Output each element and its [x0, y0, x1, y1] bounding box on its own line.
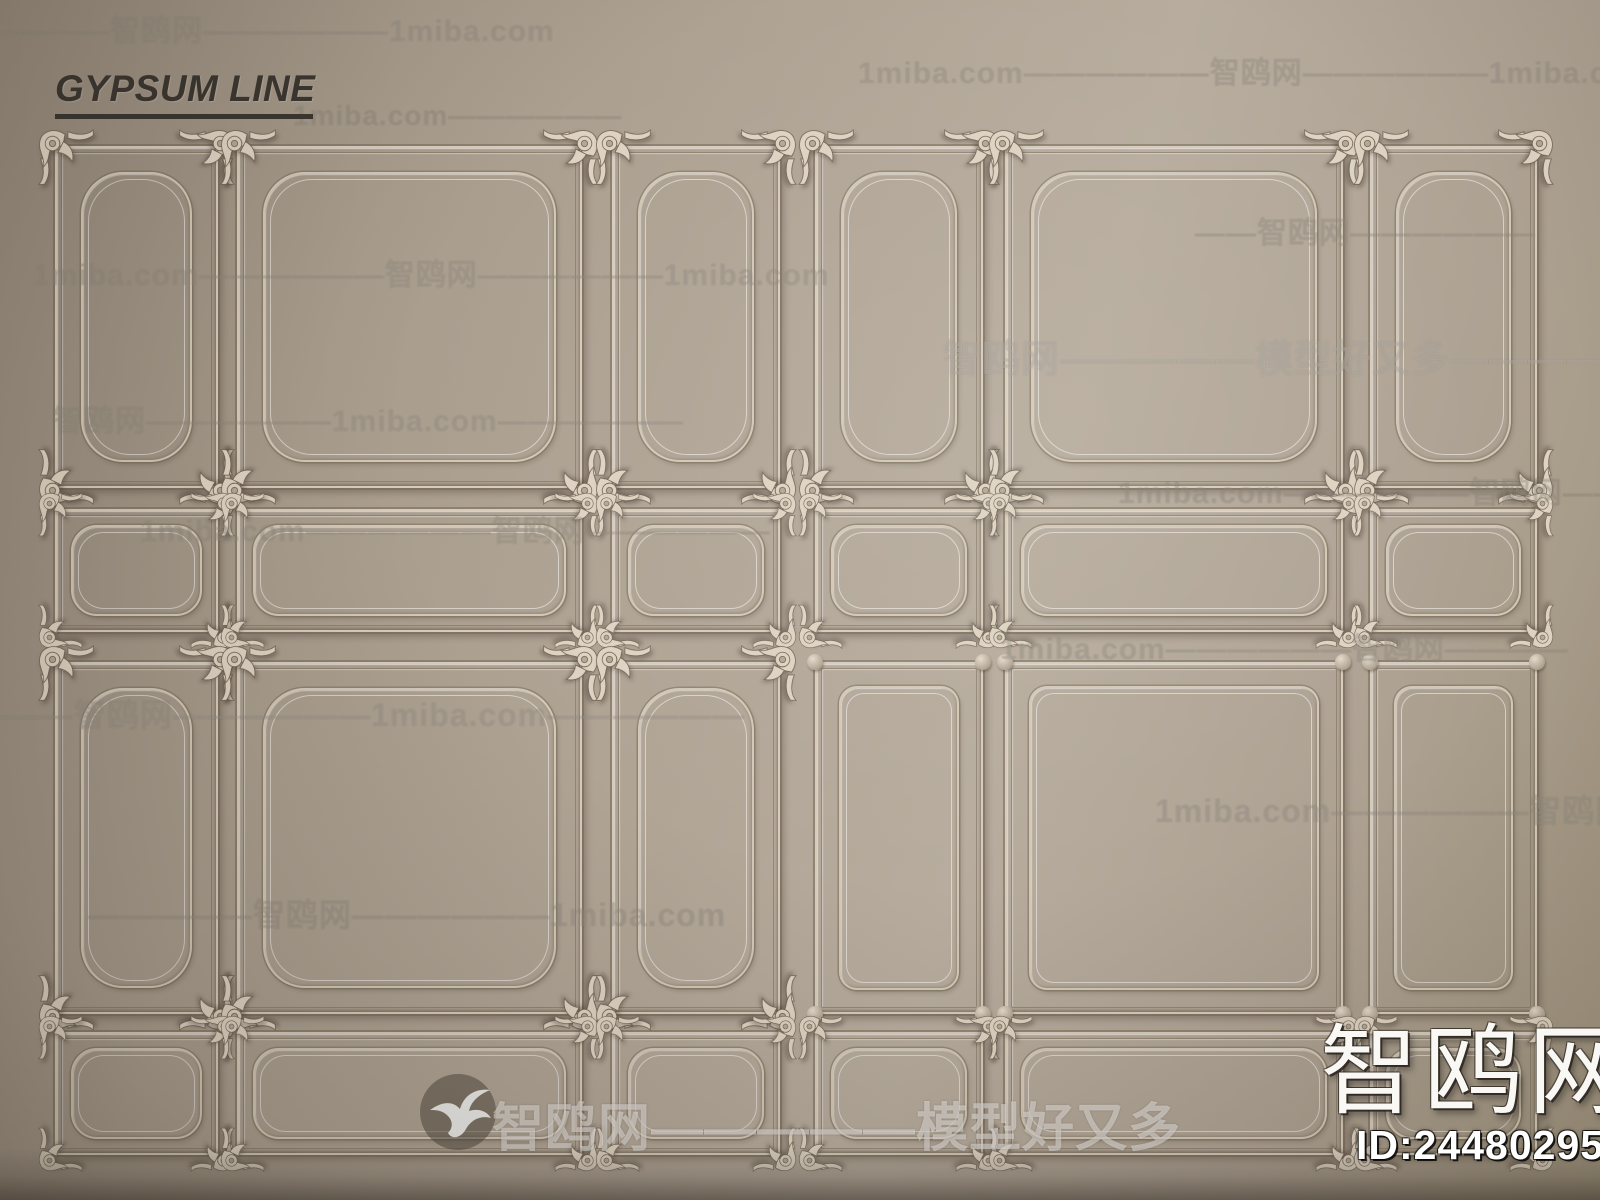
- molding-panel-r4c6: [1370, 1032, 1537, 1155]
- watermark-text: —————智鸥网——————1miba.com: [0, 6, 555, 50]
- corner-rosette-icon: [1529, 654, 1545, 670]
- corner-rosette-icon: [807, 654, 823, 670]
- corner-rosette-icon: [1362, 654, 1378, 670]
- corner-ornament-icon: [595, 1015, 641, 1061]
- corner-ornament-icon: [988, 129, 1046, 187]
- inner-molding: [1386, 525, 1521, 616]
- inner-molding: [628, 525, 764, 616]
- corner-ornament-icon: [1302, 129, 1360, 187]
- inner-molding: [839, 686, 959, 990]
- inner-molding: [841, 172, 957, 462]
- molding-panel-r2c4: [815, 509, 983, 632]
- corner-ornament-icon: [541, 129, 599, 187]
- corner-ornament-icon: [38, 645, 96, 703]
- inner-molding: [1394, 686, 1513, 990]
- molding-panel-r4c4: [815, 1032, 983, 1155]
- corner-ornament-icon: [38, 492, 84, 538]
- molding-panel-r1c4: [815, 146, 983, 488]
- inner-molding: [1029, 686, 1319, 990]
- corner-ornament-icon: [553, 492, 599, 538]
- inner-molding: [1396, 172, 1511, 462]
- corner-ornament-icon: [1353, 1126, 1399, 1172]
- corner-ornament-icon: [595, 645, 653, 703]
- inner-molding: [263, 688, 556, 988]
- molding-panel-r3c6: [1370, 662, 1537, 1014]
- corner-ornament-icon: [988, 1126, 1034, 1172]
- molding-panel-r3c4: [815, 662, 983, 1014]
- corner-ornament-icon: [798, 1015, 844, 1061]
- inner-molding: [253, 1048, 566, 1139]
- inner-molding: [1021, 525, 1327, 616]
- inner-molding: [71, 1048, 202, 1139]
- corner-ornament-icon: [751, 603, 797, 649]
- molding-panel-r2c1: [55, 509, 218, 632]
- molding-panel-r1c5: [1005, 146, 1343, 488]
- corner-ornament-icon: [1508, 1126, 1554, 1172]
- corner-ornament-icon: [739, 129, 797, 187]
- corner-ornament-icon: [751, 1126, 797, 1172]
- corner-ornament-icon: [798, 603, 844, 649]
- molding-panel-r3c2: [237, 662, 582, 1014]
- molding-panel-r4c5: [1005, 1032, 1343, 1155]
- corner-ornament-icon: [220, 1126, 266, 1172]
- corner-ornament-icon: [220, 603, 266, 649]
- inner-molding: [263, 172, 556, 462]
- corner-ornament-icon: [798, 129, 856, 187]
- corner-ornament-icon: [988, 603, 1034, 649]
- corner-ornament-icon: [38, 1015, 84, 1061]
- watermark-text: 1miba.com——————: [293, 100, 622, 132]
- corner-ornament-icon: [1508, 603, 1554, 649]
- inner-molding: [628, 1048, 764, 1139]
- molding-panel-r2c3: [612, 509, 780, 632]
- corner-rosette-icon: [1335, 654, 1351, 670]
- inner-molding: [71, 525, 202, 616]
- molding-panel-r2c5: [1005, 509, 1343, 632]
- corner-ornament-icon: [739, 645, 797, 703]
- corner-ornament-icon: [541, 645, 599, 703]
- corner-ornament-icon: [38, 129, 96, 187]
- corner-ornament-icon: [798, 1126, 844, 1172]
- corner-ornament-icon: [988, 1015, 1034, 1061]
- molding-panel-r2c6: [1370, 509, 1537, 632]
- corner-ornament-icon: [220, 1015, 266, 1061]
- molding-panel-r3c5: [1005, 662, 1343, 1014]
- molding-panel-r1c6: [1370, 146, 1537, 488]
- corner-ornament-icon: [595, 603, 641, 649]
- molding-panel-r3c3: [612, 662, 780, 1014]
- corner-ornament-icon: [38, 603, 84, 649]
- inner-molding: [638, 688, 754, 988]
- molding-panel-r4c1: [55, 1032, 218, 1155]
- corner-ornament-icon: [1496, 129, 1554, 187]
- corner-ornament-icon: [1508, 1015, 1554, 1061]
- corner-ornament-icon: [595, 129, 653, 187]
- inner-molding: [81, 172, 192, 462]
- molding-panel-r4c2: [237, 1032, 582, 1155]
- corner-ornament-icon: [595, 492, 641, 538]
- corner-ornament-icon: [1353, 492, 1399, 538]
- corner-ornament-icon: [220, 492, 266, 538]
- corner-ornament-icon: [220, 129, 278, 187]
- corner-ornament-icon: [751, 1015, 797, 1061]
- inner-molding: [1021, 1048, 1327, 1139]
- molding-panel-r2c2: [237, 509, 582, 632]
- corner-ornament-icon: [1353, 129, 1411, 187]
- corner-ornament-icon: [751, 492, 797, 538]
- inner-molding: [831, 525, 967, 616]
- molding-panel-r1c3: [612, 146, 780, 488]
- corner-ornament-icon: [595, 1126, 641, 1172]
- page-title-block: GYPSUM LINE: [55, 68, 315, 119]
- inner-molding: [1031, 172, 1317, 462]
- corner-rosette-icon: [997, 654, 1013, 670]
- molding-panel-r4c3: [612, 1032, 780, 1155]
- corner-ornament-icon: [553, 603, 599, 649]
- molding-panel-r1c1: [55, 146, 218, 488]
- corner-ornament-icon: [38, 1126, 84, 1172]
- inner-molding: [253, 525, 566, 616]
- corner-ornament-icon: [553, 1126, 599, 1172]
- corner-ornament-icon: [988, 492, 1034, 538]
- wall-background: GYPSUM LINE 智鸥网—————模型好又多 智鸥网 ID:2448029…: [0, 0, 1600, 1200]
- corner-rosette-icon: [975, 654, 991, 670]
- inner-molding: [831, 1048, 967, 1139]
- corner-ornament-icon: [1353, 1015, 1399, 1061]
- inner-molding: [638, 172, 754, 462]
- molding-panel-r3c1: [55, 662, 218, 1014]
- corner-ornament-icon: [798, 492, 844, 538]
- molding-panel-r1c2: [237, 146, 582, 488]
- corner-ornament-icon: [1508, 492, 1554, 538]
- watermark-text: 1miba.com——————智鸥网——————1miba.com: [858, 48, 1600, 92]
- inner-molding: [81, 688, 192, 988]
- corner-ornament-icon: [220, 645, 278, 703]
- title-underline: [55, 114, 313, 119]
- page-title: GYPSUM LINE: [55, 68, 315, 110]
- corner-ornament-icon: [553, 1015, 599, 1061]
- corner-ornament-icon: [1353, 603, 1399, 649]
- inner-molding: [1386, 1048, 1521, 1139]
